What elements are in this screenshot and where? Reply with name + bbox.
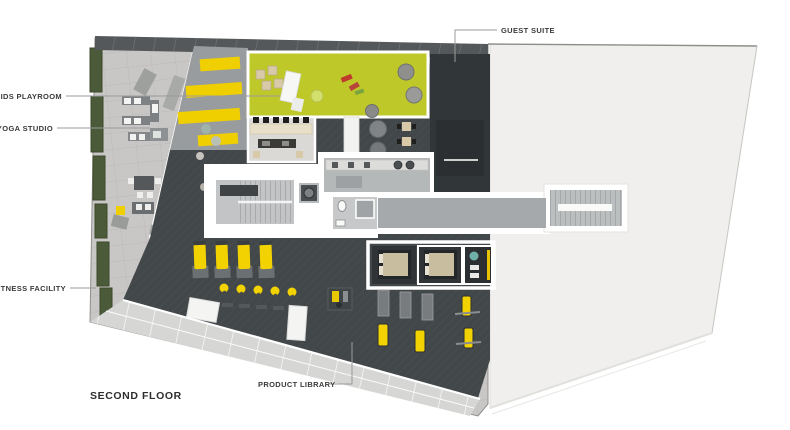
kids-playroom-label: KIDS PLAYROOM [0,92,62,101]
yellow-bench [464,328,473,348]
cushion [139,134,145,140]
bike-base [239,304,250,308]
bike-base [256,305,267,309]
towel-rail [487,250,490,280]
play-ball [311,90,323,102]
shower [356,200,374,218]
hedge-strip [97,242,109,286]
treadmill-deck [259,243,272,269]
cushion [134,118,141,124]
chair [155,178,161,184]
counter-room [248,117,315,162]
treadmill-deck [215,243,228,269]
pouf [211,136,221,146]
machine-drum [304,188,314,198]
kids-playroom-room [248,52,428,118]
appliance [348,162,354,168]
toilet [338,201,346,212]
cafe-chair [397,124,401,129]
kid-table [256,70,265,79]
sink [336,220,345,226]
chair [147,192,153,198]
pillow [425,266,429,275]
counter [250,124,312,134]
guest-suite-area [430,54,490,196]
bedroom-1 [372,246,416,284]
bike-base [273,306,284,310]
cafe-chair [397,139,401,144]
cafe-table [402,122,411,131]
bike-base [222,303,233,307]
floor-plan-page: GUEST SUITE KIDS PLAYROOM YOGA STUDIO FI… [0,0,790,430]
yellow-bench [378,324,388,346]
stairwell-landing [558,204,612,211]
cafe-table [402,137,411,146]
table [134,176,154,190]
table-item [262,141,270,146]
treadmill-console [215,241,227,245]
chair [137,192,143,198]
appliance [364,162,370,168]
hedge-strip [95,204,107,238]
cushion [134,98,141,104]
bench [378,290,389,316]
stool [293,117,299,123]
cafe-chair [412,139,416,144]
weight-station [328,288,352,310]
suite-bathroom [464,246,492,284]
stair-landing-mat [220,185,258,196]
treadmill-console [193,241,205,245]
floor-plan-svg: GUEST SUITE KIDS PLAYROOM YOGA STUDIO FI… [0,0,790,430]
page-title: SECOND FLOOR [90,390,182,402]
kid-table [268,66,277,75]
pouf [201,124,211,134]
fixture [470,265,479,270]
hedge-strip [93,156,105,200]
locker-benches [378,290,433,320]
bedroom-2 [418,246,462,284]
chair [296,151,303,158]
bean-bag [366,105,379,118]
cushion [130,134,136,140]
machine-room [298,182,320,204]
washer [394,161,402,169]
bean-bag [406,87,422,103]
product-display-unit [287,305,307,340]
station-pad [332,291,339,302]
chair [145,204,151,210]
hedge-strip [90,48,102,92]
bed-mattress [429,253,454,276]
cafe-chair [412,124,416,129]
treadmill-deck [193,243,206,269]
right-stairwell [550,190,622,226]
bean-bag [370,121,387,138]
hedge-strip [91,96,103,152]
basin [470,252,479,261]
fitness-facility-label: FITNESS FACILITY [0,284,66,293]
chair [253,151,260,158]
stool [253,117,259,123]
chair [136,204,142,210]
kid-table [274,79,283,88]
treadmill-console [237,241,249,245]
stool [273,117,279,123]
callout-fitness-facility: FITNESS FACILITY [0,284,96,293]
treadmill-deck [237,243,250,269]
yoga-studio-label: YOGA STUDIO [0,124,53,133]
yellow-bench [415,330,425,352]
product-library-label: PRODUCT LIBRARY [258,380,335,389]
bathroom [332,196,378,230]
appliance [332,162,338,168]
kitchen-island [336,176,362,188]
bean-bag [398,64,414,80]
pouf [196,152,204,160]
cushion [152,104,158,113]
pillow [379,254,383,263]
table-item [282,141,289,146]
table-top [153,131,161,138]
pillow [425,254,429,263]
guest-suite-label: GUEST SUITE [501,26,555,35]
stool [283,117,289,123]
main-stair [216,180,294,224]
pillow [379,266,383,275]
stool [303,117,309,123]
guest-rug [436,120,484,176]
bed-mattress [383,253,408,276]
chair [128,178,134,184]
kitchen [324,158,430,192]
cushion [124,98,131,104]
dryer [406,161,414,169]
kid-table [262,81,271,90]
station-seat [336,302,342,308]
bench [400,292,411,318]
fixture [470,273,479,278]
station-stack [343,291,348,302]
cushion [124,118,131,124]
corridor-floor [378,198,546,228]
bench [422,294,433,320]
stool [263,117,269,123]
treadmill-console [259,241,271,245]
yellow-side-table [116,206,125,215]
